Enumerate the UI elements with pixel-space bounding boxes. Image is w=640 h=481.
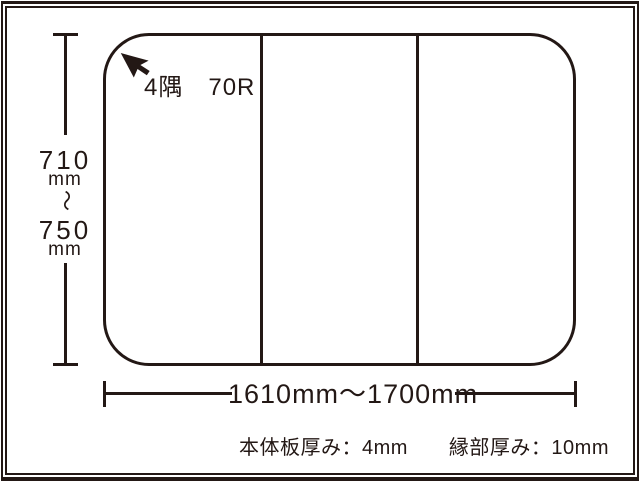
product-dimension-figure: 4隅 70R 710 mm ～ 750 mm 1610mm～1700mm 本体板… — [0, 0, 640, 481]
width-dim-label: 1610mm～1700mm — [228, 381, 458, 408]
corner-radius-note: 4隅 70R — [144, 76, 255, 100]
width-dim-left-segment — [105, 392, 232, 395]
height-dim-max-unit: mm — [20, 170, 110, 189]
height-dim-min-unit: mm — [20, 240, 110, 259]
thickness-note: 本体板厚み：4mm 縁部厚み：10mm — [239, 438, 609, 458]
height-dim-bottom-cap — [53, 363, 78, 366]
panel-divider-right — [416, 35, 419, 364]
width-dim-right-segment — [455, 392, 575, 395]
height-dim-lower-stem — [64, 263, 67, 366]
height-dim-range-tilde: ～ — [20, 190, 110, 211]
panel-divider-left — [260, 35, 263, 364]
width-dim-right-cap — [574, 381, 577, 407]
height-dim-upper-stem — [64, 33, 67, 135]
